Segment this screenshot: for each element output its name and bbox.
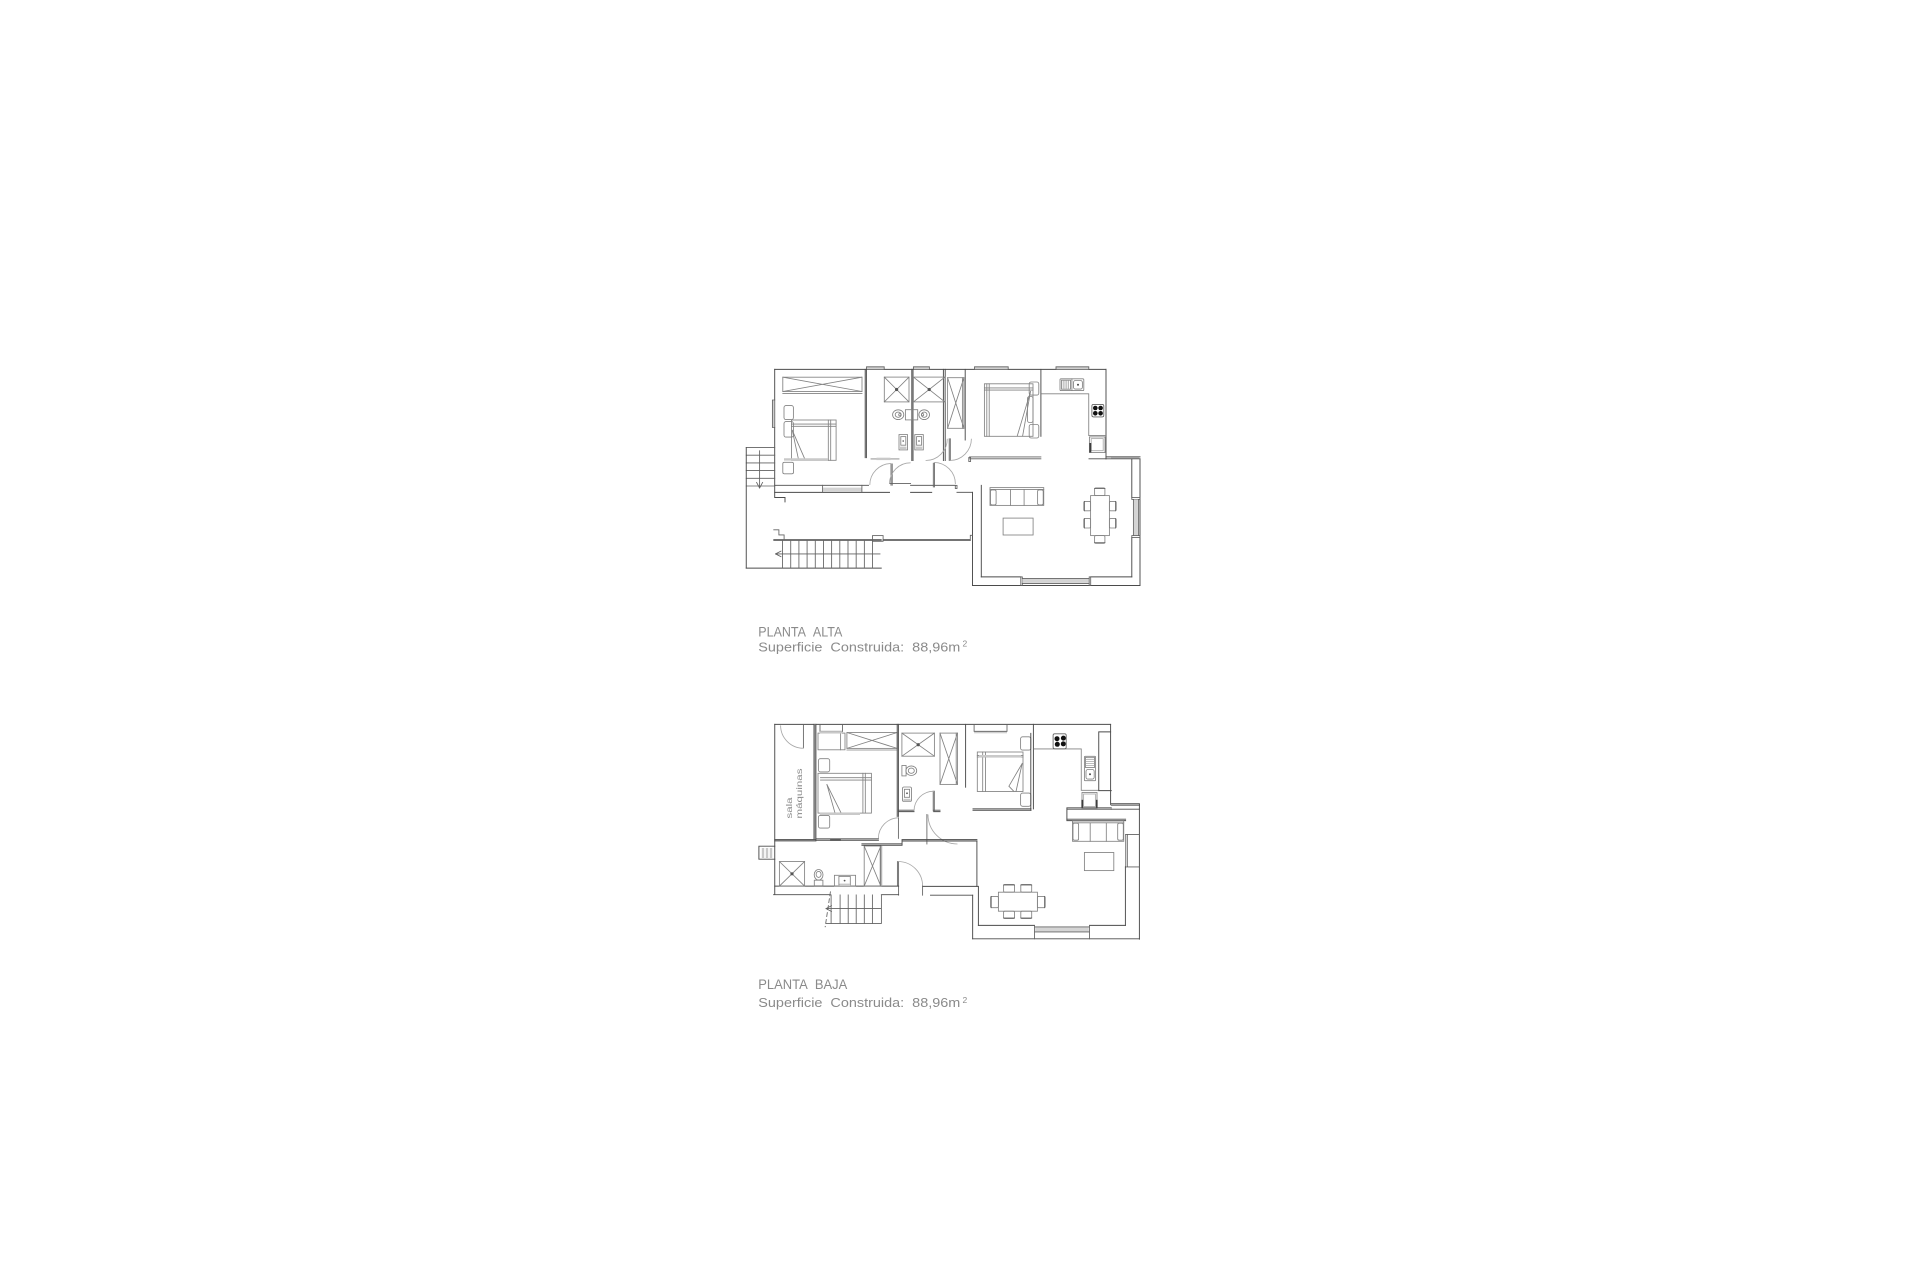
svg-text:2: 2 — [963, 638, 968, 648]
svg-text:máquinas: máquinas — [795, 769, 804, 819]
svg-text:Superficie Construida: 88,96: Superficie Construida: 88,96m — [758, 995, 960, 1010]
svg-text:sala: sala — [785, 797, 794, 819]
svg-text:2: 2 — [963, 995, 968, 1005]
svg-text:PLANTA BAJA: PLANTA BAJA — [758, 977, 847, 992]
svg-text:Superficie Construida: 88,96: Superficie Construida: 88,96m — [758, 640, 960, 655]
svg-text:PLANTA ALTA: PLANTA ALTA — [758, 625, 842, 640]
